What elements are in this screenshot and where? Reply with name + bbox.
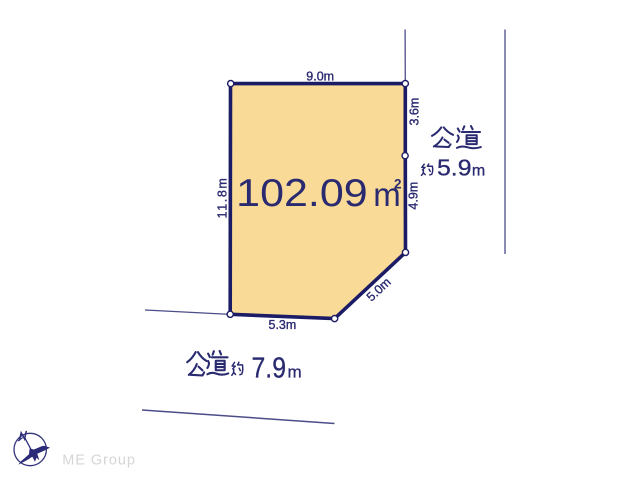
- svg-text:m: m: [472, 163, 485, 180]
- svg-text:3.6m: 3.6m: [408, 98, 422, 126]
- svg-text:m: m: [288, 363, 302, 382]
- svg-text:11.8m: 11.8m: [215, 177, 229, 219]
- svg-text:5.9: 5.9: [437, 155, 472, 181]
- svg-text:4.9m: 4.9m: [407, 182, 421, 210]
- svg-text:2: 2: [394, 177, 402, 192]
- svg-text:9.0m: 9.0m: [306, 70, 334, 84]
- svg-text:102.09: 102.09: [236, 172, 368, 215]
- svg-text:ME Group: ME Group: [62, 452, 136, 468]
- svg-text:7.9: 7.9: [252, 353, 287, 385]
- svg-text:5.3m: 5.3m: [269, 318, 297, 332]
